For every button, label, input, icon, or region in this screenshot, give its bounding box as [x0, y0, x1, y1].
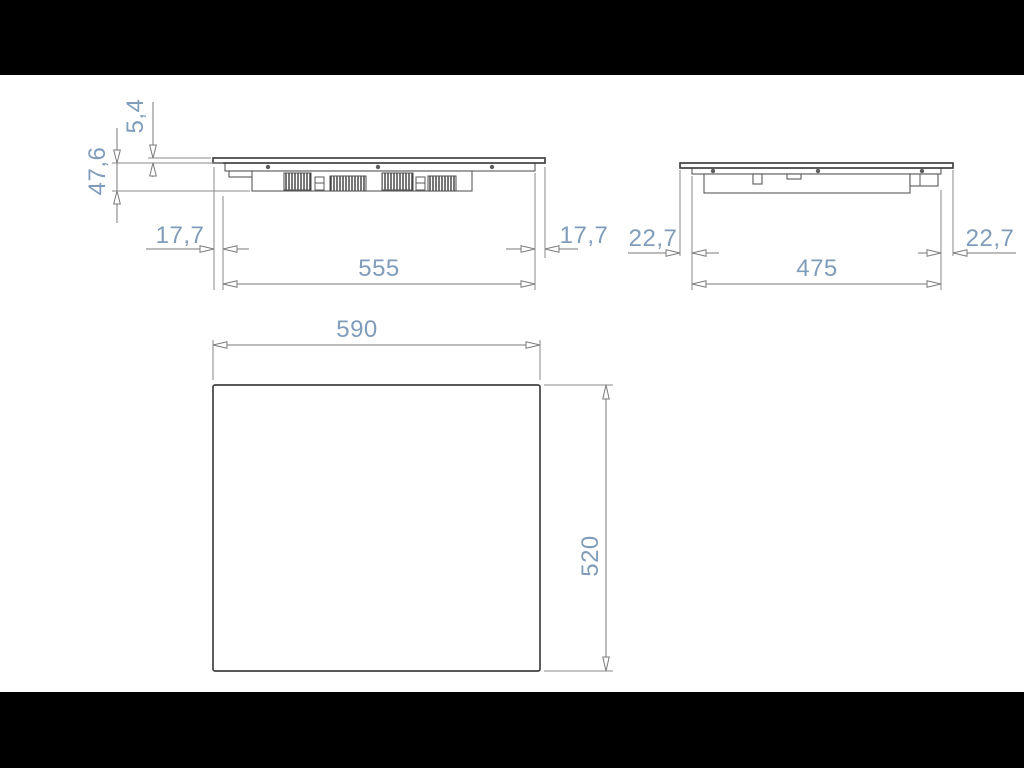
arrowhead-icon [114, 191, 121, 204]
page: 5,4 47,6 17,7 555 17,7 [0, 0, 1024, 768]
glass-top-panel [213, 158, 545, 163]
arrowhead-icon [692, 281, 706, 287]
plan-view [213, 385, 540, 671]
housing-body [704, 174, 910, 193]
dim-label-right-overhang: 22,7 [966, 225, 1015, 252]
arrowhead-icon [213, 342, 227, 348]
arrowhead-icon [223, 246, 237, 252]
arrowhead-icon [927, 250, 941, 256]
screw-icon [711, 169, 715, 173]
dim-label-left-overhang: 17,7 [156, 222, 205, 249]
dim-label-body-width: 555 [358, 255, 400, 282]
dim-label-width: 590 [336, 316, 378, 343]
housing-tab [753, 174, 762, 184]
dim-label-body-width: 475 [796, 255, 838, 282]
heatsink-fins [382, 173, 413, 190]
arrowhead-icon [150, 163, 157, 176]
technical-drawing: 5,4 47,6 17,7 555 17,7 [0, 0, 1024, 768]
arrowhead-icon [521, 281, 535, 287]
heatsink-fins [428, 176, 456, 191]
arrowhead-icon [526, 342, 540, 348]
arrowhead-icon [603, 385, 609, 399]
dim-label-right-overhang: 17,7 [560, 222, 609, 249]
front-section-dimensions: 5,4 47,6 17,7 555 17,7 [84, 99, 608, 290]
arrowhead-icon [114, 150, 121, 163]
dim-label-depth: 520 [577, 535, 604, 577]
heatsink-fins [284, 173, 311, 190]
screw-icon [266, 165, 270, 169]
screw-icon [376, 165, 380, 169]
arrowhead-icon [223, 281, 237, 287]
mounting-bracket [910, 174, 938, 186]
dim-label-glass-thickness: 5,4 [122, 99, 149, 134]
housing-step [229, 171, 253, 177]
glass-top-panel [680, 163, 953, 168]
arrowhead-icon [692, 250, 706, 256]
arrowhead-icon [521, 246, 535, 252]
dim-label-left-overhang: 22,7 [629, 225, 678, 252]
housing-notch [787, 174, 801, 179]
glass-top-outline [213, 385, 540, 671]
dim-label-total-height: 47,6 [84, 147, 111, 196]
side-section-view [680, 163, 953, 193]
front-section-view [213, 158, 545, 191]
screw-icon [816, 169, 820, 173]
arrowhead-icon [150, 145, 157, 158]
screw-icon [490, 165, 494, 169]
arrowhead-icon [603, 657, 609, 671]
arrowhead-icon [545, 246, 559, 252]
screw-icon [920, 169, 924, 173]
arrowhead-icon [927, 281, 941, 287]
heatsink-fins [330, 176, 366, 191]
